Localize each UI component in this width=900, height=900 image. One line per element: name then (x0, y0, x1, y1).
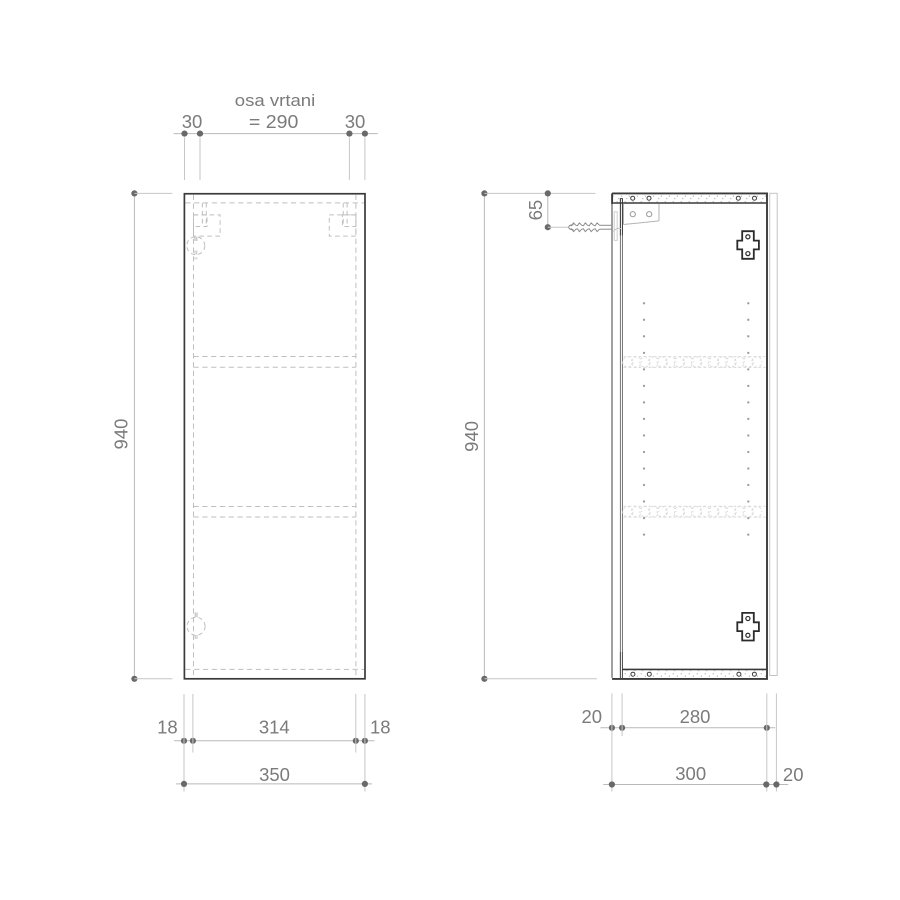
svg-text:65: 65 (525, 200, 546, 221)
svg-text:300: 300 (675, 763, 706, 784)
svg-text:30: 30 (345, 111, 366, 132)
svg-text:20: 20 (582, 706, 603, 727)
svg-text:30: 30 (182, 111, 203, 132)
svg-text:940: 940 (111, 419, 132, 450)
svg-text:940: 940 (461, 421, 482, 452)
svg-text:350: 350 (259, 764, 290, 785)
svg-text:osa vrtani: osa vrtani (235, 91, 316, 110)
svg-text:314: 314 (259, 717, 290, 738)
svg-text:280: 280 (680, 706, 711, 727)
svg-text:18: 18 (157, 717, 178, 738)
svg-text:18: 18 (370, 717, 391, 738)
svg-text:= 290: = 290 (249, 111, 299, 132)
svg-text:20: 20 (783, 764, 804, 785)
